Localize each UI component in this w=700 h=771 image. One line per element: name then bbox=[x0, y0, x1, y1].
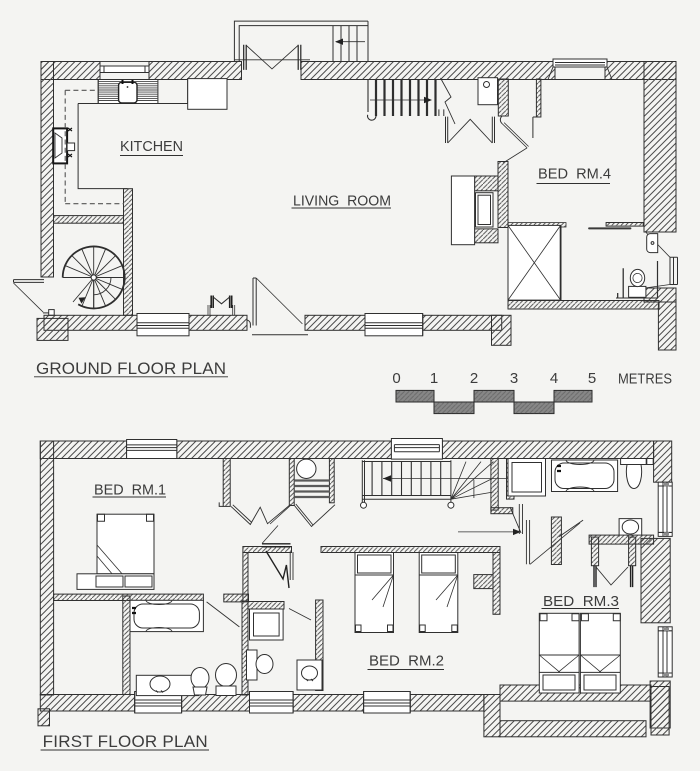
svg-text:BED RM.2: BED RM.2 bbox=[369, 653, 444, 670]
svg-text:BED RM.1: BED RM.1 bbox=[94, 482, 166, 499]
svg-text:GROUND FLOOR PLAN: GROUND FLOOR PLAN bbox=[36, 359, 226, 378]
svg-text:4: 4 bbox=[550, 370, 558, 387]
svg-text:METRES: METRES bbox=[618, 371, 672, 388]
svg-text:1: 1 bbox=[430, 370, 438, 387]
svg-text:BED RM.3: BED RM.3 bbox=[543, 593, 619, 610]
svg-text:0: 0 bbox=[392, 370, 400, 387]
svg-text:KITCHEN: KITCHEN bbox=[120, 138, 183, 155]
svg-text:FIRST FLOOR PLAN: FIRST FLOOR PLAN bbox=[43, 732, 208, 751]
svg-text:5: 5 bbox=[588, 370, 596, 387]
svg-text:BED RM.4: BED RM.4 bbox=[538, 166, 611, 183]
svg-text:2: 2 bbox=[470, 370, 478, 387]
svg-text:LIVING ROOM: LIVING ROOM bbox=[293, 193, 391, 210]
svg-text:3: 3 bbox=[510, 370, 518, 387]
